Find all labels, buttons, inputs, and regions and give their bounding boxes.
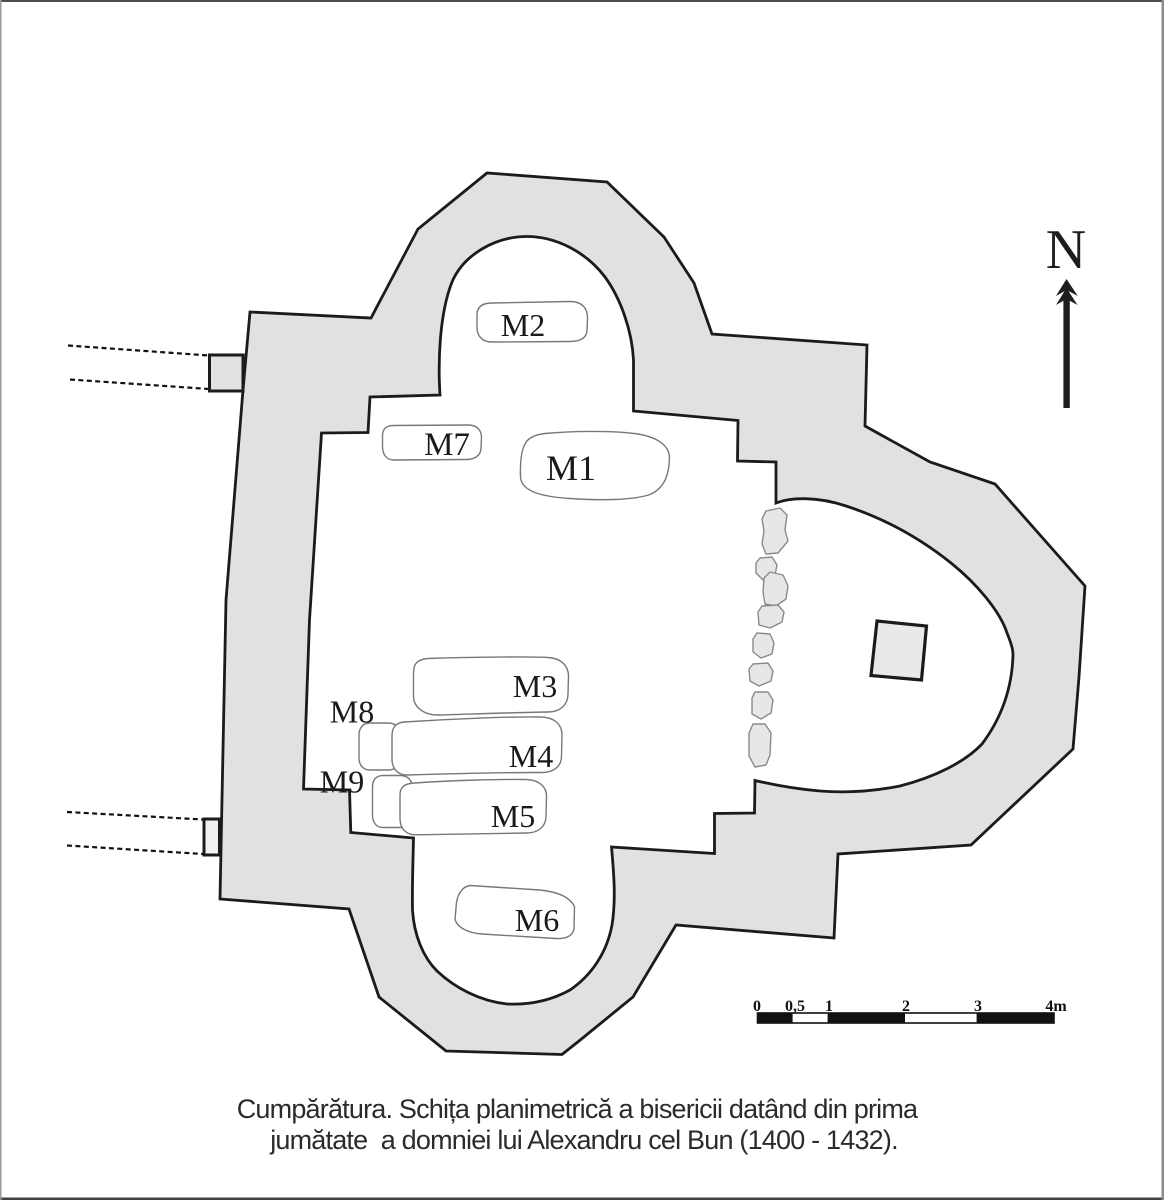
- svg-text:N: N: [1046, 219, 1086, 281]
- svg-text:Cumpărătura. Schița planimetri: Cumpărătura. Schița planimetrică a biser…: [237, 1094, 919, 1124]
- svg-text:M8: M8: [330, 694, 374, 730]
- svg-text:M3: M3: [513, 668, 557, 704]
- svg-text:3: 3: [974, 998, 982, 1015]
- svg-text:0,5: 0,5: [785, 998, 805, 1015]
- svg-text:jumătate a domniei lui Alexan: jumătate a domniei lui Alexandru cel Bun…: [269, 1125, 898, 1155]
- svg-text:M2: M2: [501, 307, 545, 343]
- svg-text:0: 0: [753, 998, 761, 1015]
- svg-text:1: 1: [825, 998, 833, 1015]
- svg-text:M1: M1: [546, 448, 596, 488]
- svg-text:M6: M6: [515, 902, 559, 938]
- svg-text:M5: M5: [491, 798, 535, 834]
- svg-text:2: 2: [902, 998, 910, 1015]
- svg-text:M9: M9: [320, 764, 364, 800]
- svg-text:4m: 4m: [1045, 998, 1067, 1015]
- svg-text:M7: M7: [424, 427, 470, 463]
- svg-text:M4: M4: [509, 738, 553, 774]
